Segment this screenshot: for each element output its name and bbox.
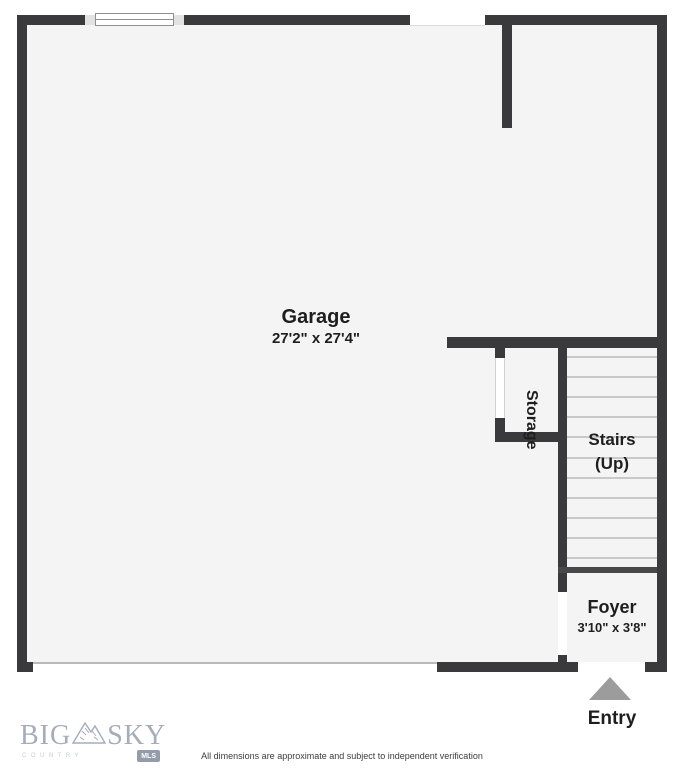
logo-text-sky: SKY [107, 723, 166, 749]
top-wall-opening [410, 15, 485, 26]
mountain-icon [72, 719, 106, 749]
room-label-stairs: Stairs (Up) [567, 428, 657, 476]
stair-step-line [567, 396, 657, 398]
wall-top-right [485, 15, 667, 25]
window-icon [95, 13, 174, 26]
wall-bottom-middle [437, 662, 578, 672]
foyer-name: Foyer [567, 597, 657, 618]
foyer-door-opening [558, 592, 567, 655]
wall-top-stub [502, 25, 512, 128]
entry-arrow-icon [589, 677, 631, 700]
garage-dimensions: 27'2" x 27'4" [166, 329, 466, 349]
stair-step-line [567, 497, 657, 499]
room-label-foyer: Foyer 3'10" x 3'8" [567, 597, 657, 636]
floorplan-page: Garage 27'2" x 27'4" Storage Stairs (Up)… [0, 0, 684, 768]
stair-step-line [567, 537, 657, 539]
disclaimer-text: All dimensions are approximate and subje… [0, 751, 684, 761]
stairs-line1: Stairs [567, 428, 657, 452]
stair-step-line [567, 477, 657, 479]
wall-foyer-left-stub [558, 655, 567, 662]
window-jamb-right [174, 15, 184, 25]
wall-bottom-left-corner [17, 662, 33, 672]
window-jamb-left [85, 15, 95, 25]
stair-step-line [567, 416, 657, 418]
wall-stairs-left [558, 348, 567, 592]
wall-storage-left-upper [495, 348, 505, 358]
stairs-line2: (Up) [567, 452, 657, 476]
wall-storage-top [447, 337, 667, 348]
room-label-garage: Garage 27'2" x 27'4" [166, 306, 466, 349]
stair-step-line [567, 517, 657, 519]
entry-label: Entry [562, 708, 662, 730]
wall-bottom-right-corner [645, 662, 667, 672]
stair-step-line [567, 376, 657, 378]
storage-door-opening [495, 358, 505, 418]
stair-step-line [567, 356, 657, 358]
garage-name: Garage [166, 306, 466, 328]
logo-text-big: BIG [20, 723, 71, 749]
stair-step-line [567, 557, 657, 559]
wall-left [17, 15, 27, 672]
wall-stairs-foyer-divider [558, 567, 657, 573]
foyer-dimensions: 3'10" x 3'8" [567, 619, 657, 636]
garage-door-opening [33, 662, 437, 672]
wall-top-left [17, 15, 410, 25]
entry-door-opening [578, 662, 645, 672]
